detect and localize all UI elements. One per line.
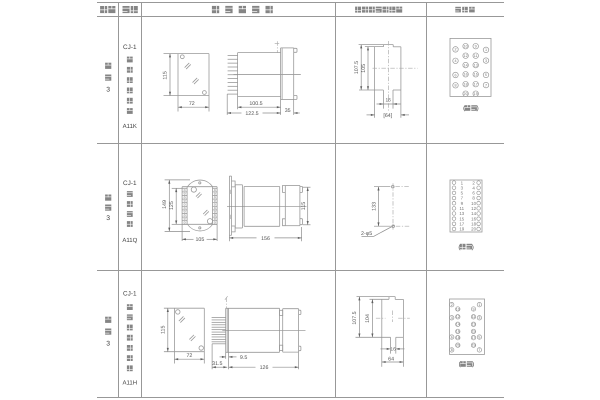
svg-text:4: 4 bbox=[451, 316, 453, 320]
svg-text:64: 64 bbox=[388, 356, 394, 362]
svg-text:115: 115 bbox=[162, 71, 168, 79]
svg-text:6: 6 bbox=[451, 335, 453, 339]
svg-text:A11K: A11K bbox=[123, 123, 137, 130]
svg-text:1: 1 bbox=[485, 48, 487, 52]
svg-text:5: 5 bbox=[478, 335, 480, 339]
svg-text:6: 6 bbox=[454, 73, 456, 77]
svg-text:A11Q: A11Q bbox=[122, 237, 137, 244]
svg-text:19: 19 bbox=[472, 344, 476, 348]
svg-text:126: 126 bbox=[260, 365, 269, 371]
svg-text:1: 1 bbox=[478, 303, 480, 307]
svg-text:31.5: 31.5 bbox=[212, 361, 222, 367]
svg-text:15: 15 bbox=[474, 73, 478, 77]
svg-text:[64]: [64] bbox=[383, 113, 392, 119]
svg-text:107.5: 107.5 bbox=[354, 61, 360, 74]
svg-text:16: 16 bbox=[464, 73, 468, 77]
svg-text:20: 20 bbox=[456, 344, 460, 348]
svg-text:18: 18 bbox=[464, 83, 468, 87]
svg-text:149: 149 bbox=[162, 200, 168, 209]
svg-text:): ) bbox=[472, 244, 474, 251]
svg-text:20: 20 bbox=[471, 227, 476, 232]
svg-text:11: 11 bbox=[474, 54, 478, 58]
svg-text:18: 18 bbox=[456, 336, 460, 340]
svg-text:100.5: 100.5 bbox=[249, 101, 262, 107]
svg-text:19: 19 bbox=[459, 227, 464, 232]
svg-text:122.5: 122.5 bbox=[245, 111, 258, 117]
svg-text:104: 104 bbox=[365, 314, 371, 323]
svg-text:12: 12 bbox=[456, 315, 460, 319]
svg-text:107.5: 107.5 bbox=[352, 311, 358, 324]
svg-text:8: 8 bbox=[451, 348, 453, 352]
svg-text:16: 16 bbox=[386, 97, 392, 103]
svg-text:12: 12 bbox=[464, 54, 468, 58]
svg-text:3: 3 bbox=[106, 87, 110, 94]
svg-text:35: 35 bbox=[285, 108, 291, 114]
svg-text:19: 19 bbox=[474, 92, 478, 96]
svg-text:14: 14 bbox=[464, 63, 468, 67]
svg-text:7: 7 bbox=[478, 348, 480, 352]
svg-text:13: 13 bbox=[474, 63, 478, 67]
svg-text:3: 3 bbox=[485, 59, 487, 63]
svg-text:9: 9 bbox=[475, 45, 477, 49]
svg-text:8: 8 bbox=[454, 84, 456, 88]
svg-text:3: 3 bbox=[106, 215, 110, 222]
svg-text:15: 15 bbox=[472, 330, 476, 334]
svg-text:3: 3 bbox=[478, 316, 480, 320]
svg-text:20: 20 bbox=[464, 92, 468, 96]
svg-text:A11H: A11H bbox=[123, 379, 138, 386]
svg-text:16: 16 bbox=[391, 347, 397, 352]
svg-text:125: 125 bbox=[169, 201, 175, 210]
svg-text:5: 5 bbox=[485, 73, 487, 77]
svg-text:14: 14 bbox=[456, 323, 460, 327]
svg-text:9.5: 9.5 bbox=[240, 355, 247, 361]
svg-text:CJ-1: CJ-1 bbox=[123, 180, 137, 187]
svg-text:3: 3 bbox=[106, 341, 110, 348]
svg-text:): ) bbox=[477, 105, 479, 112]
svg-text:105: 105 bbox=[195, 237, 204, 243]
svg-text:CJ-1: CJ-1 bbox=[123, 290, 137, 297]
svg-text:115: 115 bbox=[161, 326, 167, 334]
svg-text:72: 72 bbox=[186, 353, 192, 359]
svg-text:115: 115 bbox=[301, 202, 307, 210]
svg-text:13: 13 bbox=[472, 323, 476, 327]
svg-text:17: 17 bbox=[474, 83, 478, 87]
svg-text:2: 2 bbox=[454, 48, 456, 52]
svg-text:10: 10 bbox=[456, 307, 460, 311]
svg-text:16: 16 bbox=[456, 330, 460, 334]
svg-text:): ) bbox=[472, 361, 474, 368]
svg-text:72: 72 bbox=[189, 101, 195, 107]
svg-text:133: 133 bbox=[372, 202, 378, 211]
svg-text:CJ-1: CJ-1 bbox=[123, 44, 137, 51]
svg-text:105: 105 bbox=[361, 64, 367, 73]
svg-text:2: 2 bbox=[451, 303, 453, 307]
svg-text:7: 7 bbox=[485, 83, 487, 87]
svg-text:11: 11 bbox=[472, 315, 476, 319]
svg-text:10: 10 bbox=[464, 45, 468, 49]
svg-text:17: 17 bbox=[472, 336, 476, 340]
svg-text:4: 4 bbox=[454, 59, 456, 63]
svg-text:156: 156 bbox=[261, 236, 270, 242]
svg-text:9: 9 bbox=[473, 307, 475, 311]
